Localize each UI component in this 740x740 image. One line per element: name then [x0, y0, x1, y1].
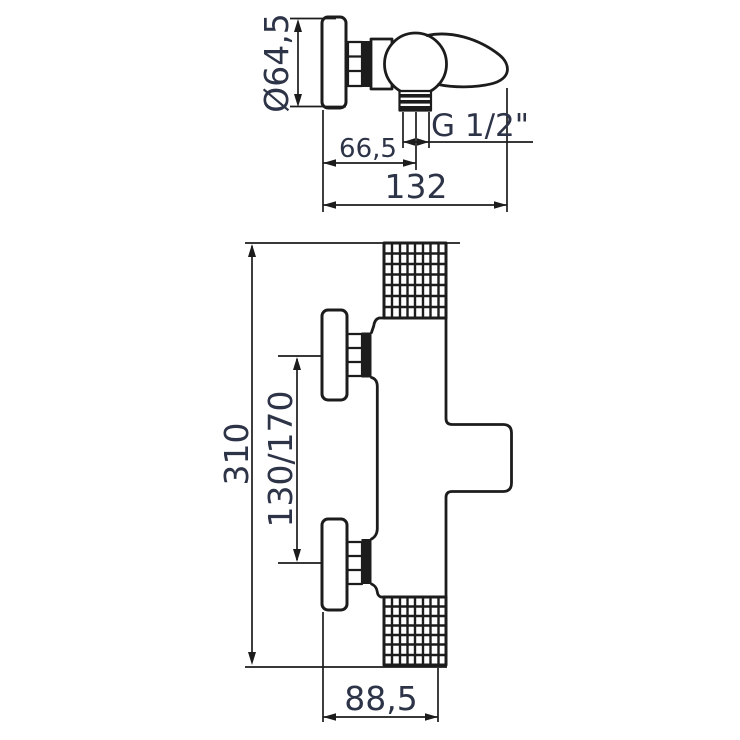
arrow-up-icon: [248, 244, 256, 257]
arrow-up-icon: [293, 357, 301, 370]
arrow-left-icon: [323, 159, 336, 167]
arrow-right-icon: [417, 138, 429, 146]
side-union-step-lines: [348, 57, 362, 72]
front-upper-union-steps: [348, 334, 363, 376]
arrow-right-icon: [403, 159, 416, 167]
dim-spacing-label: 130/170: [261, 390, 300, 527]
dim-wall-to-outlet-label: 66,5: [339, 134, 397, 164]
dim-thread-label: G 1/2": [431, 108, 529, 144]
front-lower-union-lines: [348, 556, 363, 570]
front-view: [322, 243, 512, 665]
side-union-nut: [362, 41, 372, 87]
front-upper-union-lines: [348, 348, 363, 362]
technical-drawing: Ø64,5 G 1/2" 66,5 132: [0, 0, 740, 740]
side-view: [322, 17, 507, 111]
front-upper-rosette: [322, 310, 347, 400]
arrow-right-icon: [494, 201, 507, 209]
drawing-canvas: Ø64,5 G 1/2" 66,5 132: [0, 0, 740, 740]
front-body-left-top: [372, 318, 385, 333]
side-cartridge-circle: [385, 33, 447, 95]
front-lower-union-steps: [348, 542, 363, 584]
dim-height-label: 310: [217, 423, 256, 486]
dim-width-label: 88,5: [344, 679, 417, 718]
side-union-steps: [348, 42, 362, 86]
arrow-left-icon: [403, 138, 415, 146]
side-thread-band: [400, 106, 432, 110]
front-body-right-outlet: [446, 318, 512, 597]
arrow-down-icon: [293, 549, 301, 562]
arrow-left-icon: [323, 713, 336, 721]
side-thread-band: [400, 100, 432, 104]
front-lower-union-nut: [362, 539, 372, 584]
arrow-right-icon: [425, 713, 438, 721]
side-wall-rosette: [322, 17, 346, 108]
front-lower-rosette: [322, 519, 347, 610]
side-thread-band: [400, 94, 432, 98]
arrow-left-icon: [323, 201, 336, 209]
front-body-left-bottom: [372, 584, 385, 597]
front-upper-union-nut: [362, 333, 372, 378]
dim-depth-label: 132: [385, 167, 448, 206]
dim-diameter-label: Ø64,5: [257, 13, 296, 112]
arrow-down-icon: [248, 652, 256, 665]
front-body-left-mid: [372, 378, 378, 540]
